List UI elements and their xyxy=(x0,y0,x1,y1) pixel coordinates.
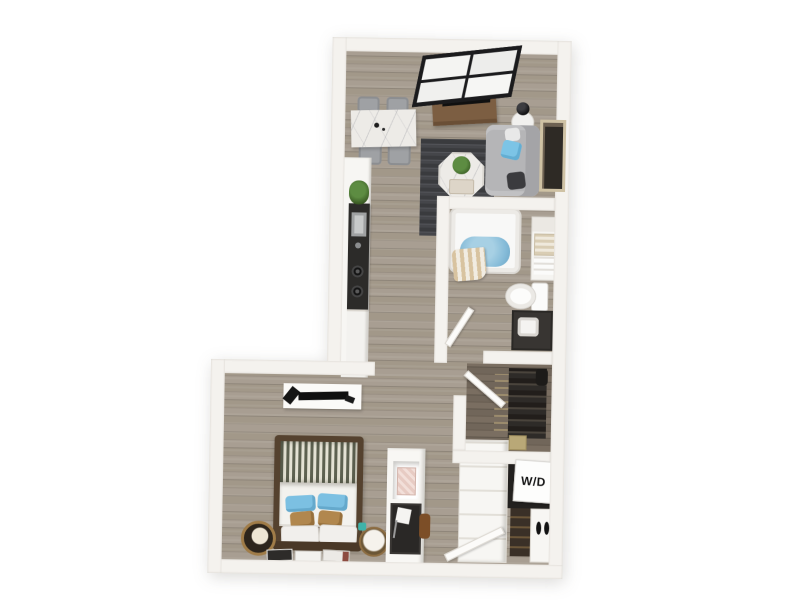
vanity-sink xyxy=(518,317,539,336)
shoe-cabinet-handle xyxy=(536,522,541,535)
shoe-rack xyxy=(510,508,531,556)
closet-box xyxy=(509,435,527,450)
washer-dryer-box: W/D xyxy=(513,459,555,504)
kitchen-sink xyxy=(351,212,366,236)
closet-bag xyxy=(536,369,548,386)
niche-box xyxy=(397,467,416,495)
sofa-throw xyxy=(506,171,526,190)
shelf-basket xyxy=(534,234,556,256)
closet-wall-left xyxy=(453,395,467,450)
window-pane xyxy=(469,50,518,75)
bed-blanket xyxy=(280,441,358,483)
bed-pillow-blue xyxy=(317,493,348,511)
shelf-towels xyxy=(534,257,554,275)
bathroom-wall-top xyxy=(437,196,555,211)
wall-art xyxy=(539,120,566,192)
desk-paper xyxy=(395,507,412,524)
shower-curtain xyxy=(451,247,487,282)
washer-dryer-label: W/D xyxy=(514,460,554,502)
floor-plan-stage: W/D xyxy=(0,0,800,600)
dining-table-decor xyxy=(374,123,379,128)
window-pane xyxy=(464,73,513,98)
window-pane xyxy=(422,55,471,80)
bedroom-wall-top xyxy=(211,359,375,376)
kitchen-plant xyxy=(349,180,369,204)
kitchen-faucet xyxy=(355,242,361,248)
window-pane xyxy=(417,78,466,103)
floor-plan: W/D xyxy=(0,0,800,600)
coffee-table-tray xyxy=(449,179,474,194)
soundbar xyxy=(298,391,348,400)
sofa-pillow-blue xyxy=(500,139,523,161)
bathroom-wall-bottom xyxy=(483,351,552,365)
dining-table xyxy=(351,109,417,147)
desk-bag xyxy=(419,514,430,539)
bed-pillow-blue xyxy=(285,495,316,513)
nightstand-cup xyxy=(358,522,366,530)
